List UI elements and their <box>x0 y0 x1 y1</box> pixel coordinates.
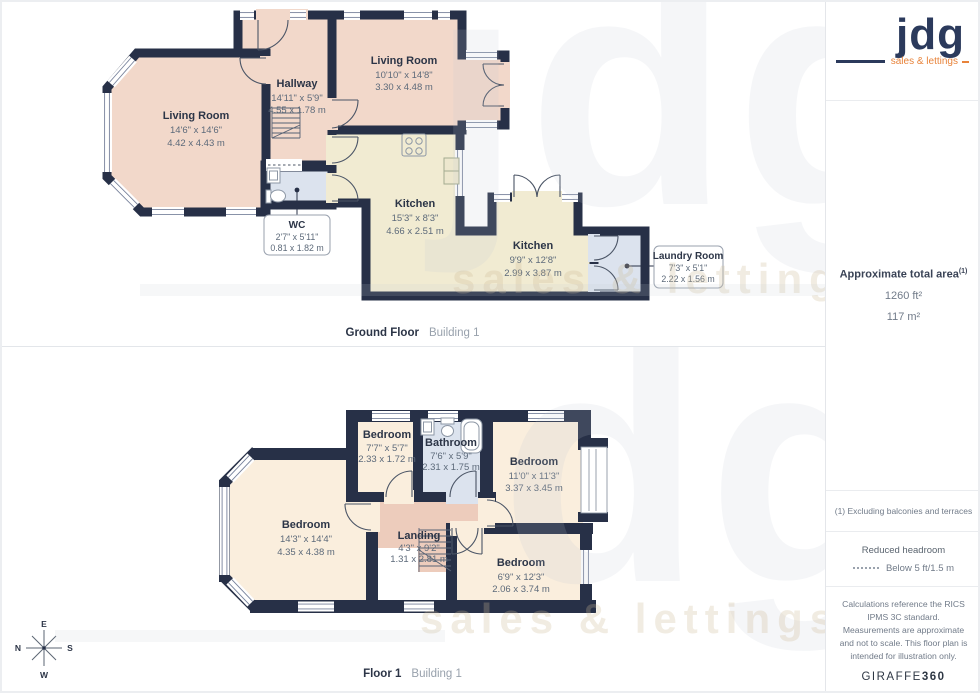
svg-text:14'3" x 14'4": 14'3" x 14'4" <box>280 534 332 545</box>
giraffe360-logo: GIRAFFE360 <box>839 671 968 683</box>
total-area-section: Approximate total area(1) 1260 ft² 117 m… <box>826 101 980 491</box>
footnote-text: (1) Excluding balconies and terraces <box>835 506 973 516</box>
svg-text:15'3" x 8'3": 15'3" x 8'3" <box>392 213 439 224</box>
svg-text:4.66 x 2.51 m: 4.66 x 2.51 m <box>386 226 444 237</box>
floor-1-title: Floor 1 Building 1 <box>0 668 825 680</box>
room-label-bedroom-small: Bedroom <box>363 429 412 441</box>
room-laundry <box>594 231 645 296</box>
total-area-metric: 117 m² <box>887 311 920 323</box>
svg-text:2.99 x 3.87 m: 2.99 x 3.87 m <box>504 268 562 279</box>
room-label-bedroom-bottom: Bedroom <box>497 557 546 569</box>
compass-east: E <box>41 619 47 629</box>
svg-text:1.31 x 2.81 m: 1.31 x 2.81 m <box>390 554 448 565</box>
floor-1-plan: Bedroom 14'3" x 14'4" 4.35 x 4.38 m Bedr… <box>0 347 825 693</box>
legend-item: Below 5 ft/1.5 m <box>886 563 954 574</box>
room-label-hallway: Hallway <box>277 78 319 90</box>
disclaimer-section: Calculations reference the RICS IPMS 3C … <box>826 587 980 693</box>
svg-text:9'9" x 12'8": 9'9" x 12'8" <box>510 255 557 266</box>
room-label-laundry: Laundry Room <box>653 251 724 262</box>
svg-text:3.37 x 3.45 m: 3.37 x 3.45 m <box>505 483 563 494</box>
dashed-line-icon <box>853 567 879 569</box>
ground-floor-plan: WC 2'7" x 5'11" 0.81 x 1.82 m Laundry Ro… <box>0 0 825 346</box>
legend-title: Reduced headroom <box>862 545 945 556</box>
room-label-bedroom-large: Bedroom <box>282 519 331 531</box>
total-area-imperial: 1260 ft² <box>885 290 922 302</box>
wc-toilet-icon <box>266 190 286 203</box>
jdg-logo: jdg <box>836 16 969 53</box>
wc-sink-icon <box>267 168 280 183</box>
floor-name: Ground Floor <box>346 327 419 339</box>
room-label-bathroom: Bathroom <box>425 437 477 449</box>
room-label-kitchen-main: Kitchen <box>395 198 436 210</box>
building-name: Building 1 <box>429 327 480 339</box>
svg-text:4.35 x 4.38 m: 4.35 x 4.38 m <box>277 547 335 558</box>
svg-text:4.42 x 4.43 m: 4.42 x 4.43 m <box>167 138 225 149</box>
logo-underline <box>836 60 885 63</box>
total-area-label: Approximate total area(1) <box>840 268 968 281</box>
room-label-bedroom-right: Bedroom <box>510 456 559 468</box>
svg-text:14'11" x 5'9": 14'11" x 5'9" <box>271 93 322 104</box>
svg-text:7'6" x 5'9": 7'6" x 5'9" <box>430 451 472 462</box>
bathroom-sink-icon <box>421 419 434 435</box>
room-label-living-left: Living Room <box>163 110 230 122</box>
footnote-section: (1) Excluding balconies and terraces <box>826 491 980 532</box>
svg-text:10'10" x 14'8": 10'10" x 14'8" <box>375 70 432 81</box>
svg-text:2.33 x 1.72 m: 2.33 x 1.72 m <box>358 454 416 465</box>
floor-name: Floor 1 <box>363 668 401 680</box>
compass-south: S <box>67 643 73 653</box>
svg-text:7'3" x 5'1": 7'3" x 5'1" <box>669 263 707 273</box>
svg-text:0.81 x 1.82 m: 0.81 x 1.82 m <box>270 243 323 253</box>
compass-north: N <box>15 643 21 653</box>
building-name: Building 1 <box>411 668 462 680</box>
room-label-wc: WC <box>289 220 306 231</box>
room-label-kitchen-rear: Kitchen <box>513 240 554 252</box>
svg-text:6'9" x 12'3": 6'9" x 12'3" <box>498 572 545 583</box>
logo-tagline: sales & lettings <box>891 56 958 67</box>
svg-text:2'7" x 5'11": 2'7" x 5'11" <box>276 232 319 242</box>
svg-text:2.22 x 1.56 m: 2.22 x 1.56 m <box>661 274 714 284</box>
svg-text:7'7" x 5'7": 7'7" x 5'7" <box>366 443 408 454</box>
disclaimer-text: Calculations reference the RICS IPMS 3C … <box>839 598 968 662</box>
info-sidebar: jdg sales & lettings Approximate total a… <box>825 0 980 693</box>
svg-text:2.06 x 3.74 m: 2.06 x 3.74 m <box>492 584 550 595</box>
bathroom-toilet-icon <box>441 418 454 437</box>
counter-icon <box>444 158 459 184</box>
svg-text:4'3" x 9'2": 4'3" x 9'2" <box>398 543 440 554</box>
room-label-living-top: Living Room <box>371 55 438 67</box>
floorplan-page: { "ground_floor": { "title": "Ground Flo… <box>0 0 980 693</box>
svg-text:2.31 x 1.75 m: 2.31 x 1.75 m <box>422 462 480 473</box>
legend-section: Reduced headroom Below 5 ft/1.5 m <box>826 532 980 587</box>
ground-floor-panel: WC 2'7" x 5'11" 0.81 x 1.82 m Laundry Ro… <box>0 0 825 347</box>
floor-1-panel: Bedroom 14'3" x 14'4" 4.35 x 4.38 m Bedr… <box>0 347 825 693</box>
ground-floor-title: Ground Floor Building 1 <box>0 327 825 339</box>
svg-text:11'0" x 11'3": 11'0" x 11'3" <box>509 471 560 482</box>
svg-text:3.30 x 4.48 m: 3.30 x 4.48 m <box>375 82 433 93</box>
logo-section: jdg sales & lettings <box>826 0 980 101</box>
svg-text:14'6" x 14'6": 14'6" x 14'6" <box>170 125 222 136</box>
room-label-landing: Landing <box>398 530 441 542</box>
box-window <box>581 447 607 513</box>
svg-text:4.55 x 1.78 m: 4.55 x 1.78 m <box>268 105 326 116</box>
logo-underline-end <box>962 61 969 63</box>
footnote-ref: (1) <box>959 268 968 275</box>
